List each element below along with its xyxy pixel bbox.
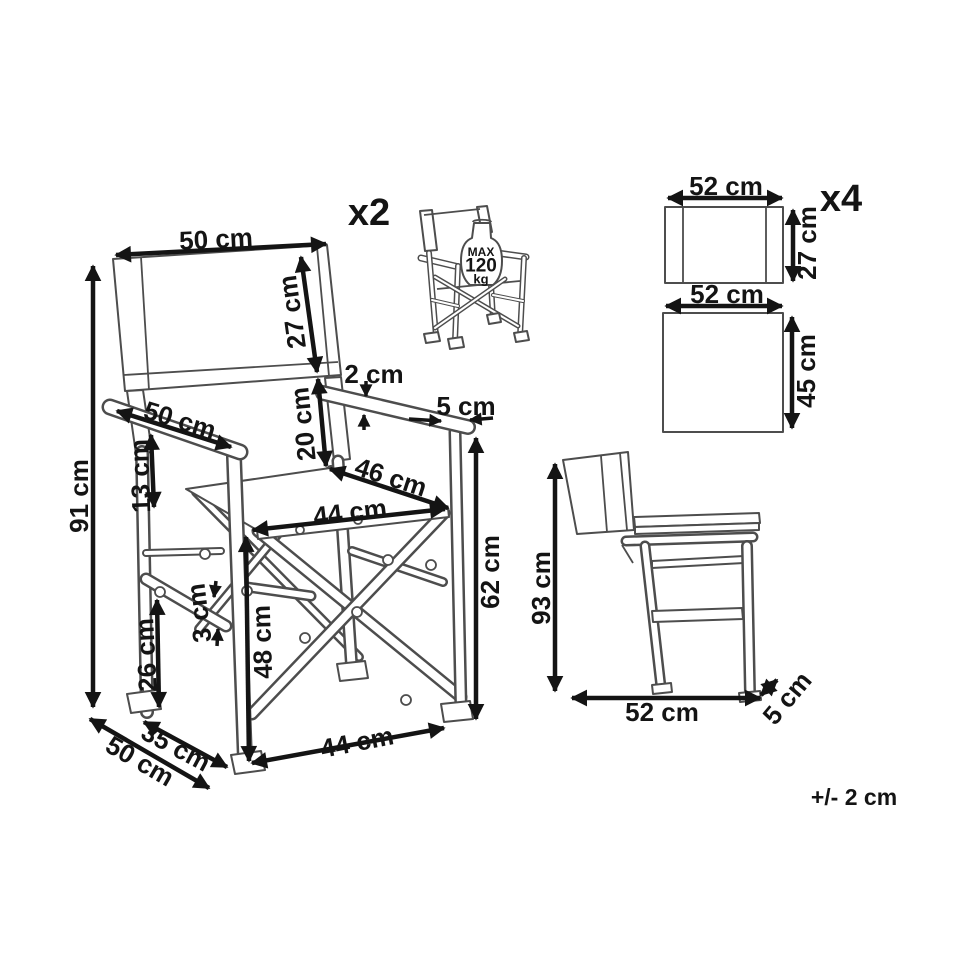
dim-label-folded-depth: 52 cm <box>625 697 699 727</box>
dim-label-armrest-floor-height: 62 cm <box>475 535 505 609</box>
dim-label-folded-thickness: 5 cm <box>756 666 817 731</box>
dim-label-folded-height: 93 cm <box>526 551 556 625</box>
dim-label-backrest-to-seat-gap: 20 cm <box>284 386 322 462</box>
dim-rail-thickness-arrow-bottom <box>217 629 218 646</box>
dim-label-side-rail-thickness: 3 cm <box>181 582 218 644</box>
dim-label-seat-panel-width: 52 cm <box>690 279 764 309</box>
dim-label-backrest-panel-width: 52 cm <box>689 171 763 201</box>
chair-quantity-label: x2 <box>348 192 390 234</box>
seat-fabric-panel <box>663 313 783 432</box>
dim-label-backrest-panel-height: 27 cm <box>792 206 822 280</box>
folded-side-view: 93 cm 52 cm 5 cm <box>526 452 818 730</box>
dim-label-total-height: 91 cm <box>64 459 94 533</box>
dim-label-armrest-end-width: 5 cm <box>436 391 495 421</box>
dim-label-armrest-thickness: 2 cm <box>344 359 403 389</box>
dim-label-armrest-to-seat: 13 cm <box>124 439 157 514</box>
dim-label-seat-floor-height: 48 cm <box>246 605 279 680</box>
tolerance-note: +/- 2 cm <box>811 784 897 810</box>
max-load-indicator: MAX 120 kg <box>420 206 529 349</box>
fabric-panels: 52 cm 27 cm 52 cm 45 cm x4 <box>663 171 862 432</box>
dim-label-backrest-width: 50 cm <box>178 222 253 256</box>
folded-chair-drawing <box>563 452 761 702</box>
dim-label-seat-panel-height: 45 cm <box>791 334 821 408</box>
dim-label-side-rail-height: 26 cm <box>129 617 163 692</box>
dim-label-front-base-width: 44 cm <box>318 720 396 764</box>
weight-icon: MAX 120 kg <box>461 220 502 287</box>
dim-rail-thickness-arrow-top <box>214 581 216 597</box>
diagram-canvas: 50 cm 27 cm 91 cm 50 cm 13 cm 2 cm 20 cm… <box>0 0 960 960</box>
max-load-unit: kg <box>473 272 488 287</box>
chair-dimension-diagram: 50 cm 27 cm 91 cm 50 cm 13 cm 2 cm 20 cm… <box>0 0 960 960</box>
panel-quantity-label: x4 <box>820 178 862 220</box>
